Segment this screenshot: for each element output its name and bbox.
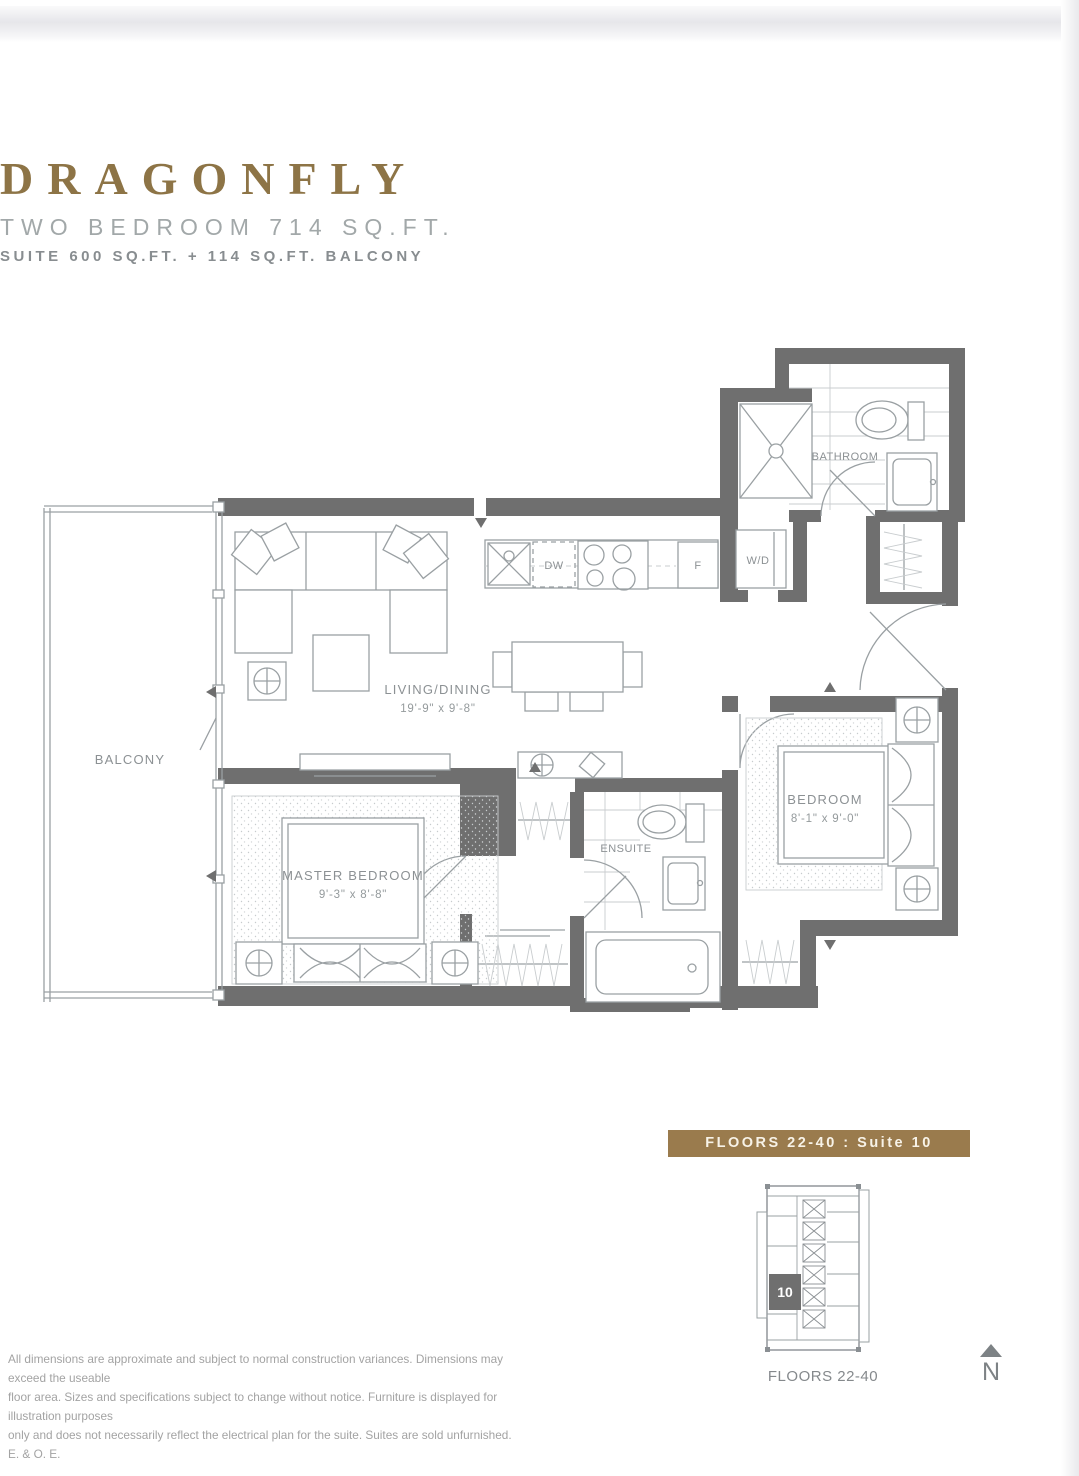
ensuite-label: ENSUITE: [600, 843, 651, 855]
floors-suite-banner: FLOORS 22-40 : Suite 10: [668, 1130, 970, 1157]
building-outline: 10: [757, 1184, 869, 1352]
side-table-lamp: [248, 662, 286, 700]
kitchen-counter: DW F: [485, 540, 718, 590]
fridge-label: F: [694, 560, 701, 572]
dining-table: [493, 642, 642, 711]
master-bedroom: MASTER BEDROOM 9'-3" x 8'-8": [232, 796, 498, 984]
bathtub: [586, 932, 720, 1002]
master-bedroom-dims: 9'-3" x 8'-8": [319, 889, 387, 901]
bathroom-label: BATHROOM: [812, 451, 879, 463]
balcony: BALCONY: [44, 502, 224, 1002]
master-bedroom-label: MASTER BEDROOM: [282, 868, 424, 883]
entry-closet: [884, 524, 922, 590]
north-letter: N: [974, 1359, 1008, 1385]
page-top-shadow: [0, 6, 1079, 42]
sofa: [232, 523, 449, 653]
plan-title: DRAGONFLY: [0, 152, 1079, 205]
floorplan-page: DRAGONFLY TWO BEDROOM 714 SQ.FT. SUITE 6…: [0, 0, 1079, 1476]
laundry-closet: W/D: [736, 530, 786, 588]
disclaimer-line: floor area. Sizes and specifications sub…: [8, 1388, 520, 1426]
key-plan: 10: [753, 1182, 893, 1354]
bedroom-closet: [742, 940, 798, 984]
entry-door: [860, 604, 946, 690]
dishwasher-label: DW: [544, 560, 563, 572]
bedroom-dims: 8'-1" x 9'-0": [791, 813, 859, 825]
north-arrow: N: [974, 1344, 1008, 1385]
bedroom-label: BEDROOM: [787, 792, 863, 807]
disclaimer-line: only and does not necessarily reflect th…: [8, 1426, 520, 1464]
suite-number: 10: [777, 1284, 793, 1300]
living-dining-dims: 19'-9" x 9'-8": [400, 703, 476, 715]
plan-subtitle: TWO BEDROOM 714 SQ.FT.: [0, 214, 1079, 241]
disclaimer-line: All dimensions are approximate and subje…: [8, 1350, 520, 1388]
floor-plan: BALCONY DW F: [30, 340, 980, 1040]
balcony-label: BALCONY: [95, 752, 166, 767]
ensuite: ENSUITE: [584, 792, 722, 930]
coffee-table: [313, 635, 369, 691]
bathroom: BATHROOM: [789, 364, 949, 516]
keyplan-caption: FLOORS 22-40: [753, 1368, 893, 1385]
hall-closet-upper: [518, 802, 570, 840]
shower: [740, 404, 812, 498]
bedroom: BEDROOM 8'-1" x 9'-0": [740, 682, 938, 950]
disclaimer: All dimensions are approximate and subje…: [8, 1350, 520, 1464]
living-dining-label: LIVING/DINING: [384, 682, 491, 697]
suite-area-info: SUITE 600 SQ.FT. + 114 SQ.FT. BALCONY: [0, 248, 1079, 265]
washer-dryer-label: W/D: [747, 555, 770, 567]
north-arrow-icon: [980, 1344, 1002, 1357]
